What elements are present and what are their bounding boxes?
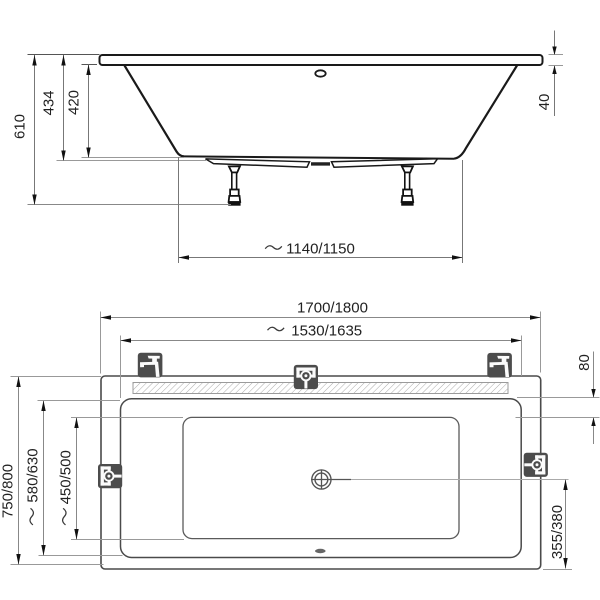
svg-text:80: 80	[576, 354, 593, 371]
svg-text:420: 420	[66, 90, 83, 115]
svg-text:434: 434	[41, 90, 58, 115]
svg-text:750/800: 750/800	[0, 464, 16, 518]
svg-text:450/500: 450/500	[58, 450, 75, 504]
svg-text:355/380: 355/380	[549, 505, 566, 559]
svg-text:1700/1800: 1700/1800	[297, 299, 368, 316]
svg-text:610: 610	[12, 114, 29, 139]
svg-text:40: 40	[536, 94, 553, 111]
svg-text:1530/1635: 1530/1635	[291, 322, 362, 339]
svg-text:580/630: 580/630	[25, 448, 42, 502]
svg-text:1140/1150: 1140/1150	[286, 241, 355, 258]
